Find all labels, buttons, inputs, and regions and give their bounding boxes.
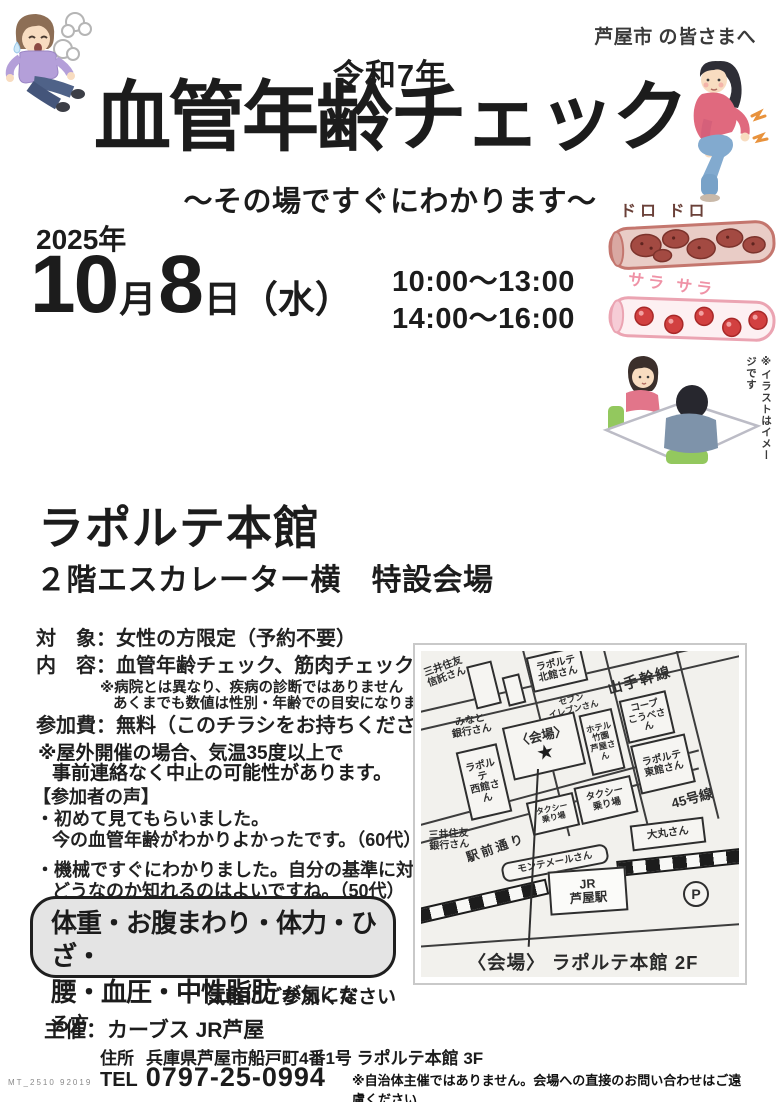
- target-value: 女性の方限定（予約不要）: [116, 628, 356, 650]
- clean-vessel-icon: [606, 293, 780, 347]
- month-unit: 月: [119, 269, 156, 323]
- event-date: 10 月 8 日（水）: [30, 242, 354, 328]
- day-unit: 日（水）: [204, 269, 352, 323]
- map-label: ラポルテ 北館さん: [535, 654, 579, 685]
- map-label-route-45: 45号線: [670, 786, 715, 811]
- venue-name: ラポルテ本館: [38, 492, 320, 558]
- map-label: JR 芦屋駅: [568, 876, 607, 907]
- fee-label: 参加費：: [36, 715, 116, 737]
- map-label: ホテル 竹園 芦屋さん: [583, 720, 621, 764]
- audience-city: 芦屋市: [594, 27, 653, 48]
- map-label: タクシー 乗り場: [585, 785, 627, 814]
- document-code: MT_2510 92019: [8, 1078, 92, 1087]
- map-taxi-stand: タクシー 乗り場: [573, 775, 638, 825]
- map-building-laporte-west: ラポルテ 西館さん: [456, 743, 513, 821]
- consultation-illustration: [600, 350, 764, 470]
- map-building: [466, 661, 502, 710]
- concern-line-1: 体重・お腹まわり・体力・ひざ・: [51, 907, 377, 972]
- map-jr-ashiya-station: JR 芦屋駅: [548, 866, 629, 915]
- concern-highlight-box: 体重・お腹まわり・体力・ひざ・ 腰・血圧・中性脂肪が気になる方: [30, 896, 396, 978]
- join-cta: 気軽にご参加ください: [30, 982, 396, 1009]
- target-line: 対 象：女性の方限定（予約不要）: [36, 622, 356, 651]
- content-value: 血管年齢チェック、筋肉チェック: [116, 655, 414, 677]
- map-label: ラポルテ 西館さん: [460, 756, 507, 808]
- railway-track: [616, 847, 739, 877]
- map-label-smbc: 三井住友 銀行さん: [428, 828, 469, 853]
- road-line: [421, 922, 739, 948]
- organizer-label: 主催：: [44, 1019, 107, 1042]
- audience-note: 芦屋市 の皆さまへ: [594, 22, 756, 49]
- map-building-laporte-north: ラポルテ 北館さん: [526, 651, 589, 693]
- voice-1-line-2: 今の血管年齢がわかりよかったです。（60代）: [52, 826, 421, 852]
- map-building-daimaru: 大丸さん: [630, 817, 707, 852]
- day-number: 8: [158, 242, 202, 328]
- map-label: 大丸さん: [646, 826, 689, 843]
- map-label: タクシー 乗り場: [535, 802, 570, 827]
- target-label: 対 象：: [36, 628, 116, 650]
- blood-vessel-illustrations: ドロ ドロ サラ サラ: [606, 197, 780, 347]
- map-caption: 〈会場〉 ラポルテ本館 2F: [441, 949, 725, 975]
- map-building: [502, 673, 527, 706]
- content-label: 内 容：: [36, 655, 116, 677]
- access-map: ラポルテ 北館さん 〈会場〉 ★ ホテル 竹園 芦屋さん コープ こうべさん ラ…: [413, 643, 747, 985]
- month-number: 10: [30, 242, 117, 328]
- map-label: ラポルテ 東館さん: [641, 749, 685, 780]
- time-slot-1: 10:00〜13:00: [392, 264, 575, 301]
- map-label-minato-bank: みなと 銀行さん: [449, 712, 492, 741]
- fee-value: 無料（このチラシをお持ちください）: [116, 715, 456, 737]
- disclaimer-note: ※自治体主催ではありません。会場への直接のお問い合わせはご遠慮ください: [352, 1070, 752, 1102]
- content-line: 内 容：血管年齢チェック、筋肉チェックなど: [36, 649, 444, 678]
- back-pain-woman-illustration: [662, 54, 780, 202]
- event-times: 10:00〜13:00 14:00〜16:00: [392, 264, 575, 338]
- outdoor-note-2: 事前連絡なく中止の可能性があります。: [52, 758, 392, 785]
- map-label: コープ こうべさん: [622, 697, 672, 738]
- time-slot-2: 14:00〜16:00: [392, 301, 575, 338]
- illustration-disclaimer-vertical: ※イラストはイメージです: [744, 356, 774, 468]
- map-building-coop-kobe: コープ こうべさん: [619, 690, 676, 744]
- dirty-vessel-icon: [606, 217, 780, 273]
- audience-rest: の皆さまへ: [653, 27, 756, 48]
- tel-label: TEL: [100, 1069, 138, 1092]
- flyer-page: 芦屋市 の皆さまへ 令和7年 血管年齢チェック 〜その場ですぐにわかります〜 2…: [0, 0, 780, 1102]
- organizer-line: 主催：カーブス JR芦屋: [44, 1014, 264, 1044]
- map-building-venue: 〈会場〉 ★: [502, 711, 586, 780]
- map-building-laporte-east: ラポルテ 東館さん: [630, 733, 696, 794]
- map-label-mitsui-trust: 三井住友 信託さん: [422, 655, 467, 690]
- map-building-hotel-takezono: ホテル 竹園 芦屋さん: [578, 708, 625, 776]
- tel-line: TEL 0797-25-0994: [100, 1062, 326, 1093]
- parking-icon: P: [683, 881, 709, 907]
- fee-line: 参加費：無料（このチラシをお持ちください）: [36, 709, 456, 738]
- tel-number: 0797-25-0994: [146, 1062, 326, 1093]
- venue-star-icon: ★: [535, 741, 557, 765]
- venue-detail: ２階エスカレーター横 特設会場: [36, 555, 494, 599]
- organizer-value: カーブス JR芦屋: [107, 1019, 264, 1042]
- access-map-canvas: ラポルテ 北館さん 〈会場〉 ★ ホテル 竹園 芦屋さん コープ こうべさん ラ…: [421, 651, 739, 977]
